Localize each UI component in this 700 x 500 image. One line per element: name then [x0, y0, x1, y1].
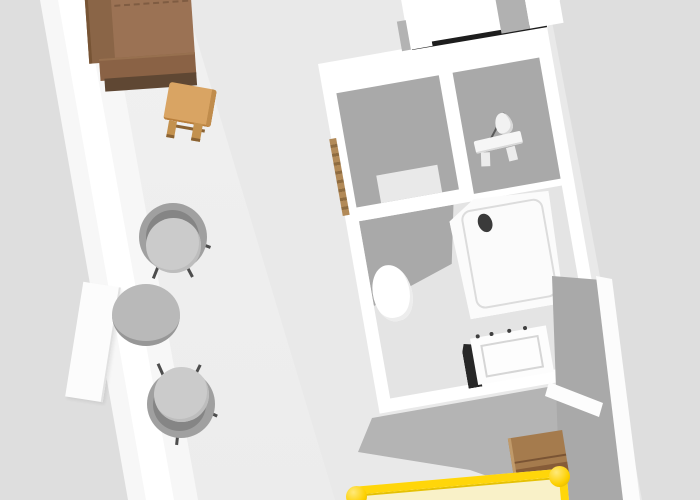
- stool-leg: [166, 120, 177, 138]
- washstand[interactable]: [466, 99, 532, 170]
- bed-post-knob: [346, 486, 367, 500]
- floorplan-3d-view: [0, 0, 700, 500]
- round-table[interactable]: [112, 284, 180, 346]
- stool[interactable]: [159, 82, 223, 152]
- washstand-leg: [506, 146, 518, 162]
- shower-tray-rim: [460, 197, 559, 310]
- washstand-leg: [481, 152, 490, 166]
- chair-seat: [146, 218, 201, 273]
- armchair-bottom[interactable]: [146, 364, 216, 440]
- chair-seat: [154, 367, 209, 422]
- armchair-top[interactable]: [138, 203, 208, 279]
- bed-post-knob: [549, 466, 570, 487]
- stool-leg: [191, 123, 203, 142]
- washbasin-rim: [480, 335, 544, 378]
- wardrobe-seam-line: [114, 0, 188, 7]
